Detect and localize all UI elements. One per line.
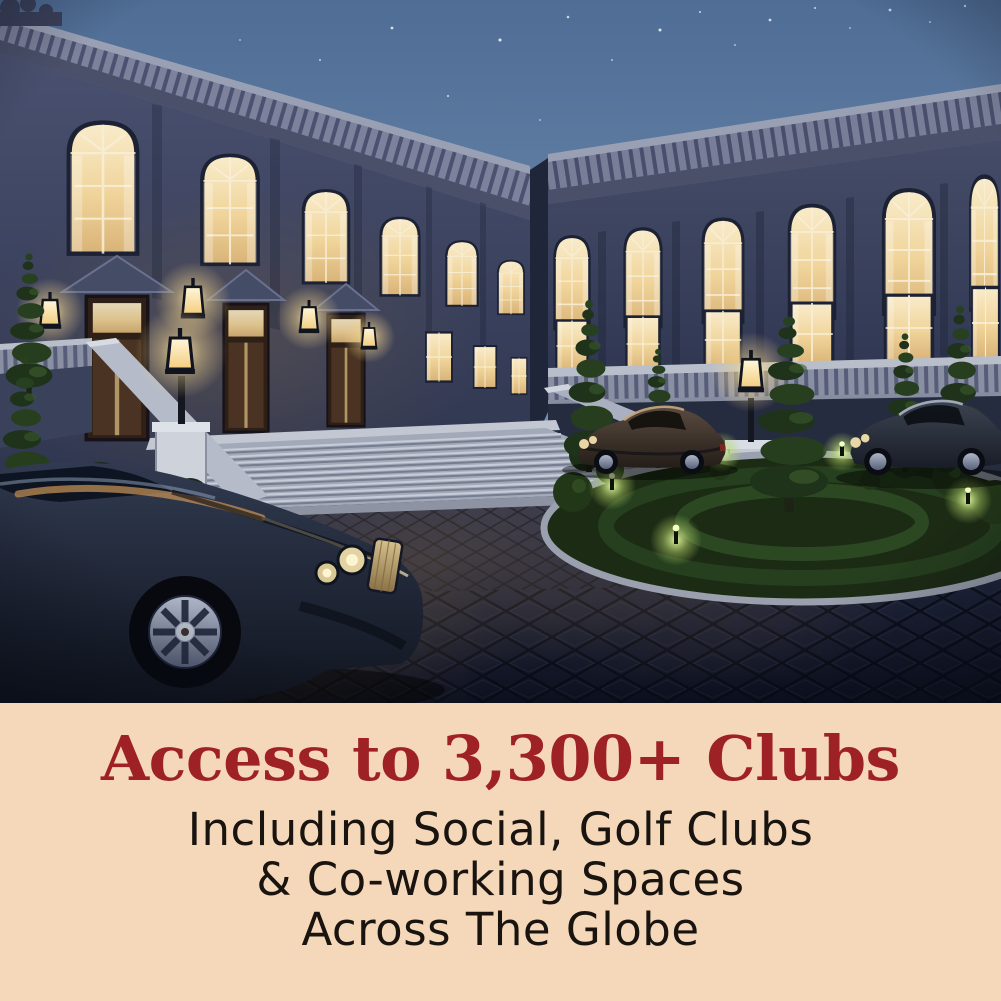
subheadline-line-3: Across The Globe (0, 905, 1001, 955)
vignette (0, 0, 1001, 703)
caption-band: Access to 3,300+ Clubs Including Social,… (0, 703, 1001, 1001)
subheadline: Including Social, Golf Clubs & Co-workin… (0, 805, 1001, 955)
flyer: Access to 3,300+ Clubs Including Social,… (0, 0, 1001, 1001)
subheadline-line-2: & Co-working Spaces (0, 855, 1001, 905)
subheadline-line-1: Including Social, Golf Clubs (0, 805, 1001, 855)
hero-photo (0, 0, 1001, 703)
headline: Access to 3,300+ Clubs (0, 727, 1001, 791)
